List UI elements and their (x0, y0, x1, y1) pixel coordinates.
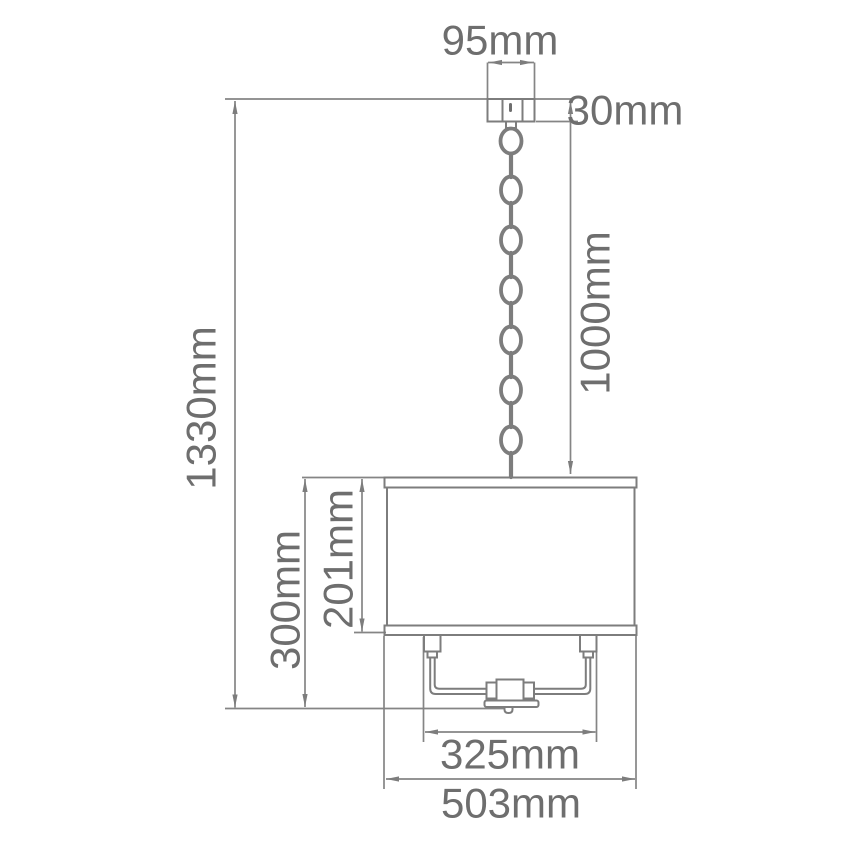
arrowhead (232, 101, 237, 114)
arrowhead (583, 729, 596, 734)
chain-link-oval (501, 377, 521, 404)
dim-label-overall-height: 1330mm (178, 326, 225, 489)
shade-body (387, 488, 635, 626)
dim-label-shade-width: 503mm (441, 780, 581, 827)
arrowhead (622, 776, 635, 781)
arrowhead (425, 729, 438, 734)
arrowhead (302, 694, 307, 707)
arm-right-inner (534, 658, 586, 689)
arrowhead (232, 695, 237, 708)
dim-label-shade-height: 201mm (315, 489, 362, 629)
dim-label-chain-length: 1000mm (572, 231, 619, 394)
candle-socket-right (580, 635, 597, 652)
hub-center-box (497, 680, 524, 701)
chain-link-oval (501, 277, 521, 304)
dim-label-canopy-height: 30mm (567, 87, 684, 134)
chain-link-oval (501, 177, 521, 204)
dim-label-canopy-width: 95mm (442, 17, 559, 64)
ceiling-canopy (488, 99, 535, 154)
drum-shade (385, 478, 637, 636)
dimension-labels: 95mm 30mm 1000mm 1330mm 300mm 201mm 325m… (178, 17, 684, 827)
arrowhead (568, 461, 573, 474)
arm-left-inner (435, 658, 488, 689)
lamp-frame (424, 635, 597, 713)
chain-link-oval (501, 327, 521, 354)
arrowhead (302, 479, 307, 492)
pendant-light-dimension-drawing: 95mm 30mm 1000mm 1330mm 300mm 201mm 325m… (0, 0, 868, 868)
hub-flange-right (524, 683, 535, 699)
chain-link-oval (501, 427, 521, 454)
hanging-loop (501, 129, 522, 154)
dim-label-body-height: 300mm (262, 530, 309, 670)
hub-base-plate (485, 701, 539, 708)
candle-socket-left-base (428, 652, 438, 658)
dimension-diagram-page: 95mm 30mm 1000mm 1330mm 300mm 201mm 325m… (0, 0, 868, 868)
suspension-chain (501, 154, 521, 477)
candle-socket-left (424, 635, 441, 652)
candle-socket-right-base (584, 652, 594, 658)
chain-link-oval (501, 227, 521, 254)
hub-flange-left (487, 683, 497, 699)
shade-bottom-rim (385, 626, 637, 636)
dim-label-frame-width: 325mm (440, 731, 580, 778)
arrowhead (386, 776, 399, 781)
